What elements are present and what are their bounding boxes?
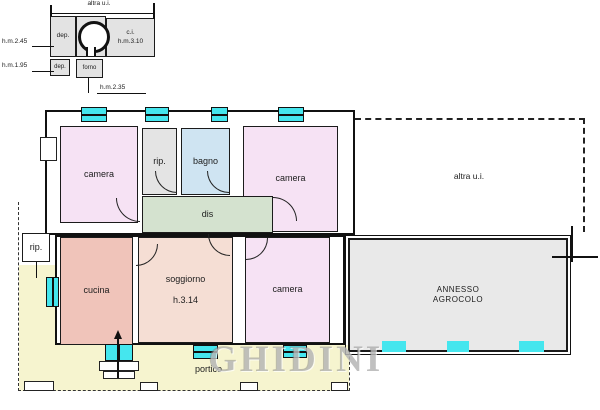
dim-label-left-top: h.m.2.45 xyxy=(2,38,27,45)
entrance-steps xyxy=(99,361,139,371)
window xyxy=(46,277,59,307)
entrance-arrow-head xyxy=(114,330,122,339)
dim-line xyxy=(32,46,54,47)
dim-line xyxy=(32,71,54,72)
room-label: rip. xyxy=(153,156,166,167)
dim-line xyxy=(88,78,89,93)
window xyxy=(447,341,469,352)
room-label: dis xyxy=(202,209,214,220)
room-label: ANNESSO xyxy=(437,285,480,295)
wall-niche xyxy=(40,137,57,161)
floor-plan-canvas: altra u.i. dep. c.i. h.m.3.10 dep. forno… xyxy=(0,0,600,410)
inset-room-dep-top: dep. xyxy=(50,16,76,57)
room-label: camera xyxy=(275,173,305,184)
entrance-steps xyxy=(103,371,135,379)
boundary-mark xyxy=(552,256,598,258)
dim-label-left-bottom: h.m.1.95 xyxy=(2,62,27,69)
room-label: dep. xyxy=(54,64,66,72)
room-label: bagno xyxy=(193,156,218,167)
room-label: camera xyxy=(84,169,114,180)
portico-pillar xyxy=(240,382,258,391)
window xyxy=(81,107,107,122)
room-label: h.m.3.10 xyxy=(118,38,143,46)
room-label: camera xyxy=(272,284,302,295)
window xyxy=(382,341,406,352)
window xyxy=(278,107,304,122)
wall xyxy=(153,3,155,19)
inset-room-forno: forno xyxy=(76,59,103,78)
window xyxy=(519,341,544,352)
portico-pillar xyxy=(24,381,54,391)
room-label: AGROCOLO xyxy=(433,295,483,305)
entrance-door xyxy=(105,344,133,361)
area-label: altra u.i. xyxy=(454,171,484,181)
portico-label: portico xyxy=(195,364,222,374)
window xyxy=(145,107,169,122)
entrance-arrow xyxy=(117,338,119,378)
boundary-mark xyxy=(571,226,573,262)
wall xyxy=(50,13,155,14)
portico-boundary-dashed xyxy=(18,202,19,391)
portico-pillar xyxy=(331,382,348,391)
portico-boundary-dashed xyxy=(349,346,350,391)
dim-label-bottom: h.m.2.35 xyxy=(100,84,125,91)
wall xyxy=(50,5,52,16)
room-height-label: h.3.14 xyxy=(173,295,198,306)
window xyxy=(283,345,307,358)
dim-line xyxy=(36,262,37,278)
inset-title: altra u.i. xyxy=(68,0,130,7)
window xyxy=(211,107,228,122)
dim-line xyxy=(97,93,146,94)
window xyxy=(193,345,218,359)
room-annesso-agricolo: ANNESSO AGROCOLO xyxy=(348,238,568,352)
area-altra-ui: altra u.i. xyxy=(355,118,585,232)
room-label: rip. xyxy=(30,242,43,253)
room-cucina: cucina xyxy=(60,237,133,345)
room-rip-west: rip. xyxy=(22,233,50,262)
room-label: c.i. xyxy=(126,29,134,37)
room-label: cucina xyxy=(83,285,109,296)
inset-room-dep-bottom: dep. xyxy=(50,59,70,76)
room-label: forno xyxy=(83,65,97,73)
corridor-dis: dis xyxy=(142,196,273,233)
portico-pillar xyxy=(140,382,158,391)
room-label: soggiorno xyxy=(166,274,206,285)
inset-room-ci: c.i. h.m.3.10 xyxy=(106,18,155,57)
portico-boundary-dashed xyxy=(18,390,350,391)
room-label: dep. xyxy=(57,32,70,40)
oven-neck xyxy=(86,47,96,56)
